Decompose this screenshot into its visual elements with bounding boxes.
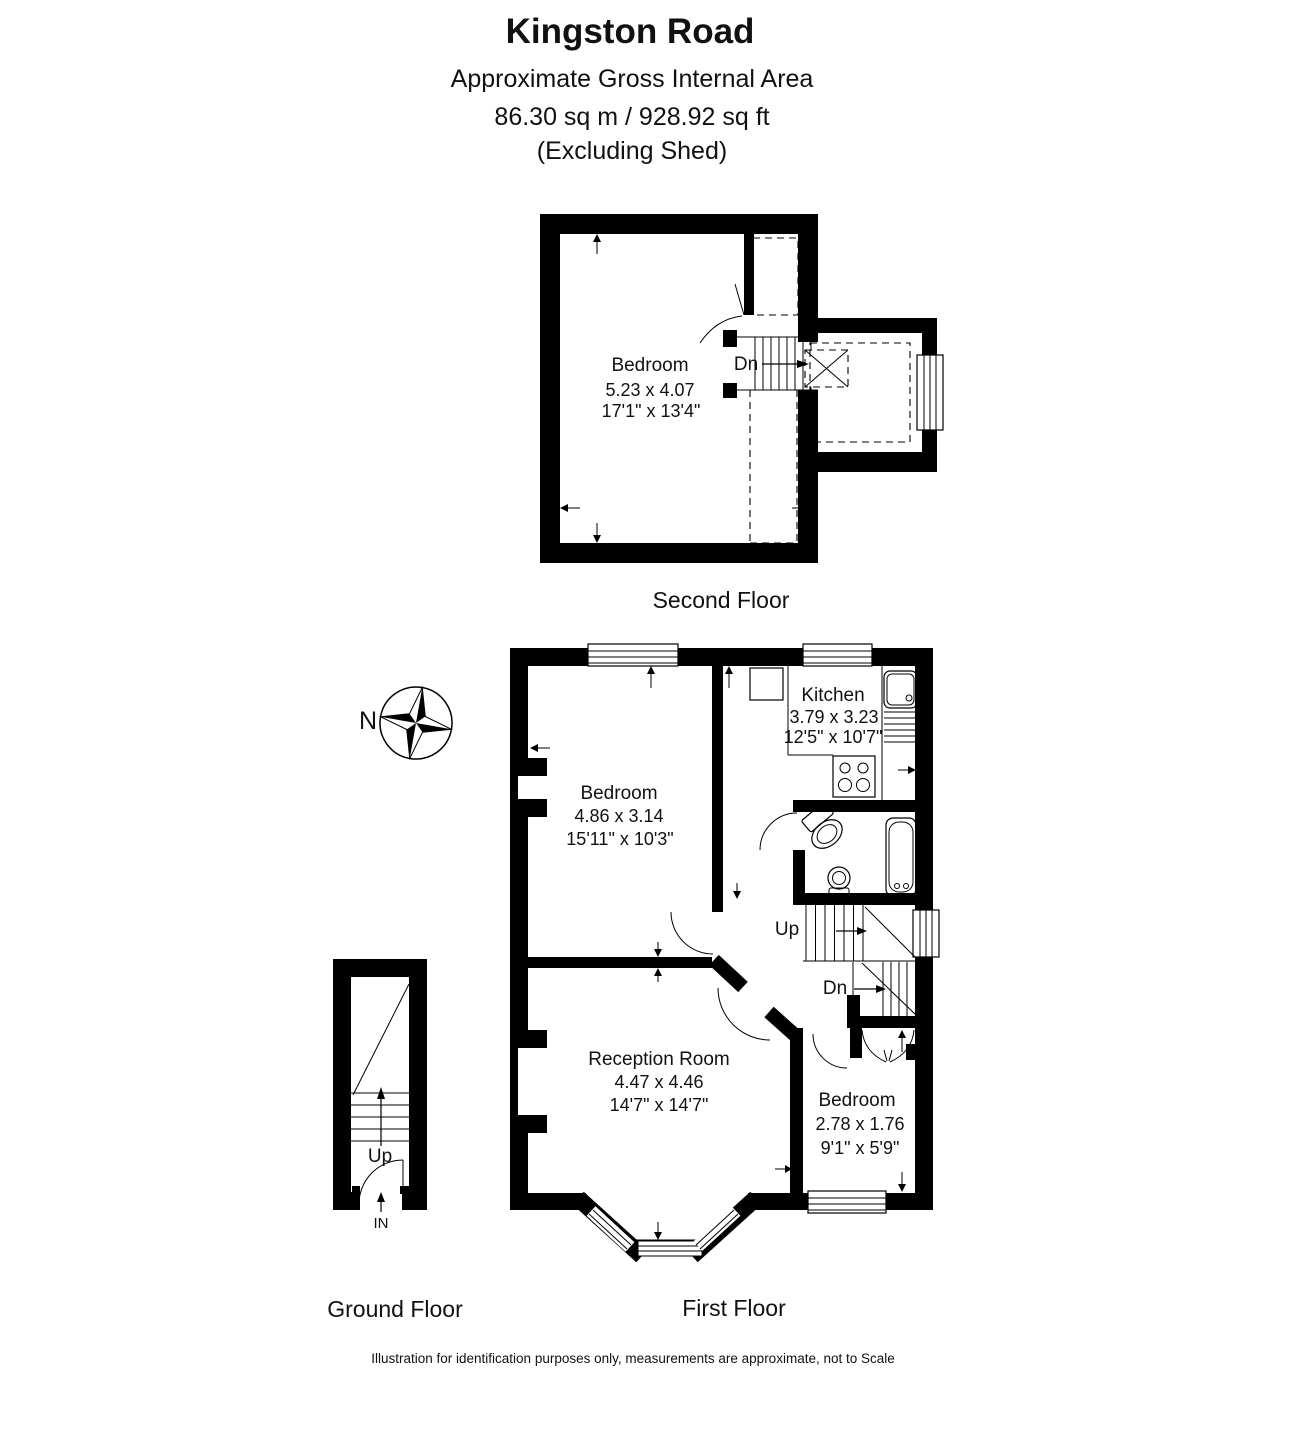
ff-bedroom-name: Bedroom bbox=[580, 784, 657, 803]
bedroom2-window bbox=[808, 1191, 886, 1213]
page-subtitle: Approximate Gross Internal Area bbox=[451, 67, 814, 92]
reception-metric: 4.47 x 4.46 bbox=[614, 1073, 703, 1091]
ff-bedroom2-metric: 2.78 x 1.76 bbox=[815, 1115, 904, 1133]
bay-window bbox=[578, 1198, 756, 1256]
ground-floor-stairs bbox=[351, 984, 409, 1146]
floorplan-page: Kingston Road Approximate Gross Internal… bbox=[0, 0, 1295, 1434]
ff-bedroom-imperial: 15'11" x 10'3" bbox=[566, 830, 673, 848]
sf-bedroom-name: Bedroom bbox=[611, 356, 688, 375]
reception-name: Reception Room bbox=[588, 1050, 730, 1069]
sf-bedroom-imperial: 17'1" x 13'4" bbox=[602, 402, 701, 420]
hob-icon bbox=[833, 756, 875, 797]
kitchen-sink-icon bbox=[884, 671, 917, 742]
gross-area: 86.30 sq m / 928.92 sq ft bbox=[494, 105, 769, 130]
compass-icon bbox=[374, 681, 457, 764]
second-floor-walls bbox=[540, 214, 937, 563]
ff-down-label: Dn bbox=[823, 979, 847, 998]
ground-floor-walls bbox=[333, 959, 427, 1210]
second-floor-door-arc bbox=[700, 284, 744, 343]
gf-entrance-label: IN bbox=[374, 1216, 389, 1231]
sf-down-label: Dn bbox=[734, 355, 758, 374]
floorplan-canvas bbox=[0, 0, 1295, 1434]
first-floor-caption: First Floor bbox=[682, 1297, 786, 1320]
second-floor-caption: Second Floor bbox=[653, 589, 790, 612]
second-floor-down-arrow bbox=[762, 360, 809, 368]
entrance-arrow bbox=[377, 1192, 385, 1212]
kitchen-imperial: 12'5" x 10'7" bbox=[784, 728, 883, 746]
ff-bedroom-metric: 4.86 x 3.14 bbox=[574, 807, 663, 825]
gf-up-label: Up bbox=[368, 1147, 392, 1166]
loft-hatch-icon bbox=[805, 350, 848, 387]
disclaimer-text: Illustration for identification purposes… bbox=[371, 1352, 895, 1366]
ff-up-label: Up bbox=[775, 920, 799, 939]
page-title: Kingston Road bbox=[506, 14, 755, 49]
toilet-icon bbox=[828, 867, 850, 896]
second-floor-plan bbox=[540, 214, 943, 563]
sf-bedroom-metric: 5.23 x 4.07 bbox=[605, 381, 694, 399]
ff-bedroom2-imperial: 9'1" x 5'9" bbox=[821, 1139, 900, 1157]
ff-bedroom2-name: Bedroom bbox=[818, 1091, 895, 1110]
reception-imperial: 14'7" x 14'7" bbox=[610, 1096, 709, 1114]
kitchen-metric: 3.79 x 3.23 bbox=[789, 708, 878, 726]
area-exclusion: (Excluding Shed) bbox=[537, 139, 727, 164]
bathtub-icon bbox=[886, 818, 916, 896]
ground-floor-caption: Ground Floor bbox=[327, 1298, 463, 1321]
kitchen-name: Kitchen bbox=[801, 686, 864, 705]
bedroom-window bbox=[588, 644, 678, 666]
second-floor-window bbox=[917, 355, 943, 430]
kitchen-window bbox=[803, 644, 872, 666]
compass-north-label: N bbox=[359, 709, 377, 734]
stair-window bbox=[913, 910, 939, 957]
ground-floor-plan bbox=[333, 959, 427, 1212]
